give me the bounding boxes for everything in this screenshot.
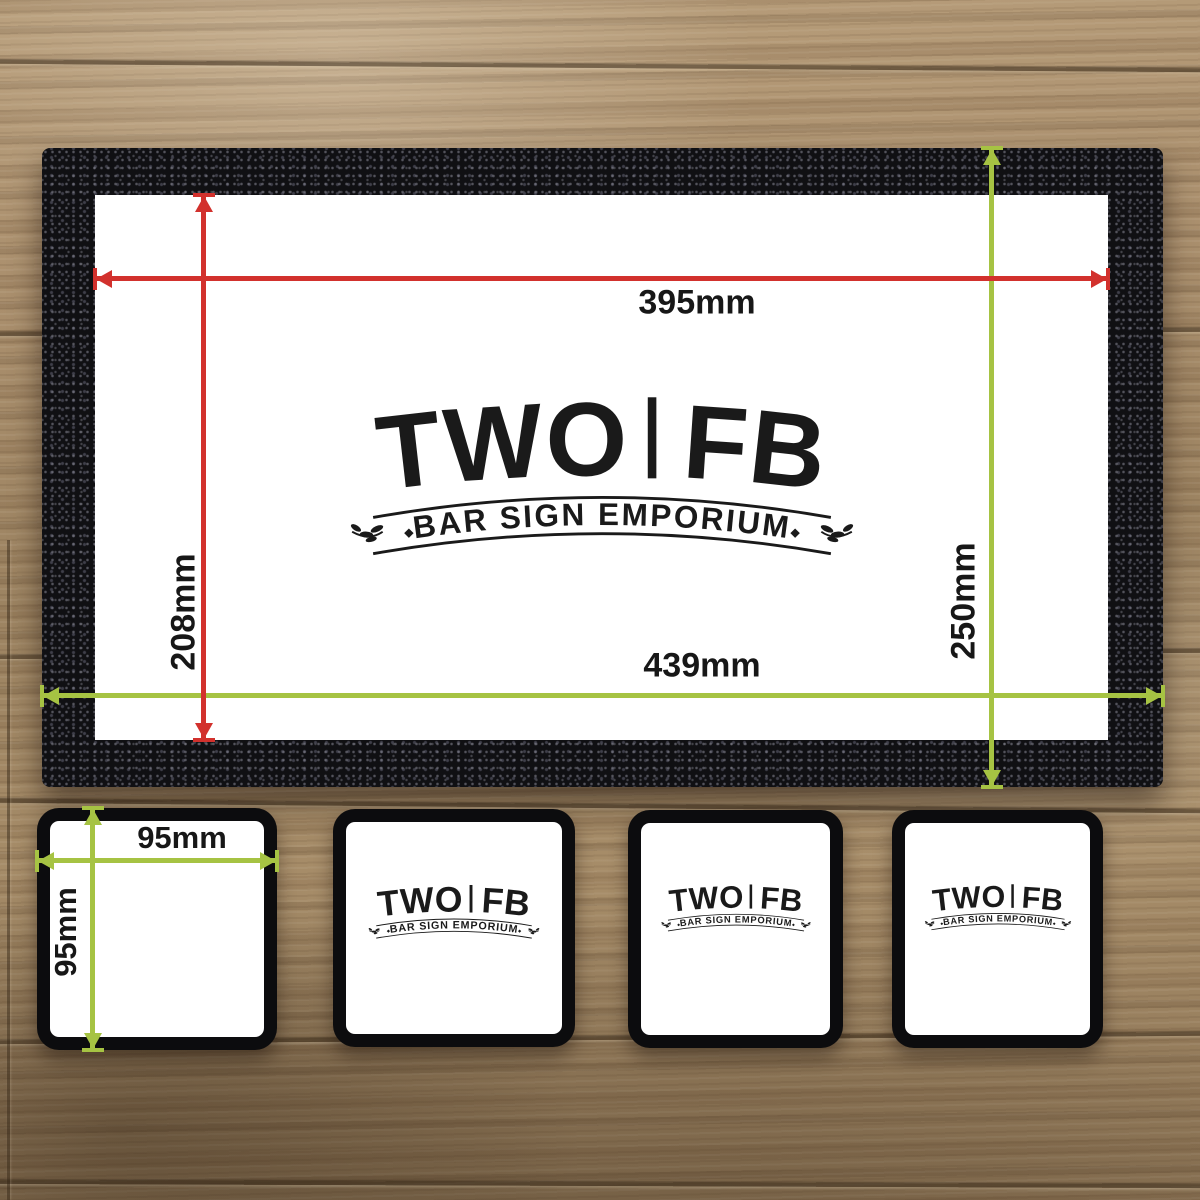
twofb-logo [659, 874, 812, 935]
arrowhead-up-icon [84, 809, 102, 825]
bar-runner-mat [42, 148, 1163, 787]
dimension-tick [82, 1048, 104, 1052]
dimension-label-overall-width: 439mm [643, 647, 760, 686]
arrowhead-left-icon [96, 270, 112, 288]
coaster-print-area [641, 823, 830, 1035]
twofb-logo [367, 873, 542, 943]
dimension-tick [275, 850, 279, 872]
dimension-label-coaster-width: 95mm [137, 820, 227, 856]
dimension-arrow-coaster-width [37, 858, 277, 863]
arrowhead-down-icon [195, 723, 213, 739]
dimension-arrow-overall-width [42, 693, 1163, 698]
coaster-with-logo [333, 809, 575, 1047]
product-photo-wood-background: TWO FB BAR SIGN EMPORIUM [0, 0, 1200, 1200]
dimension-label-coaster-height: 95mm [48, 887, 84, 977]
twofb-logo [923, 874, 1073, 934]
dimension-tick [193, 738, 215, 742]
dimension-label-overall-height: 250mm [945, 542, 984, 659]
arrowhead-right-icon [260, 852, 276, 870]
coaster-with-logo [892, 810, 1103, 1048]
coaster-print-area [346, 822, 562, 1034]
arrowhead-left-icon [38, 852, 54, 870]
dimension-label-print-width: 395mm [638, 284, 755, 323]
arrowhead-left-icon [43, 687, 59, 705]
dimension-tick [1161, 685, 1165, 707]
dimension-arrow-coaster-height [90, 808, 95, 1050]
arrowhead-down-icon [983, 770, 1001, 786]
wood-plank-seam [0, 60, 1200, 73]
arrowhead-up-icon [195, 196, 213, 212]
twofb-logo [344, 362, 859, 567]
arrowhead-up-icon [983, 149, 1001, 165]
coaster-with-logo [628, 810, 843, 1048]
dimension-tick [1106, 268, 1110, 290]
dimension-tick [981, 785, 1003, 789]
wood-plank-seam [0, 1180, 1200, 1188]
dimension-arrow-print-width [95, 276, 1108, 281]
coaster-print-area [905, 823, 1090, 1035]
arrowhead-right-icon [1146, 687, 1162, 705]
arrowhead-right-icon [1091, 270, 1107, 288]
wood-plank-seam-vertical [7, 540, 10, 1200]
dimension-arrow-overall-height [989, 148, 994, 787]
arrowhead-down-icon [84, 1033, 102, 1049]
dimension-label-print-height: 208mm [165, 553, 204, 670]
